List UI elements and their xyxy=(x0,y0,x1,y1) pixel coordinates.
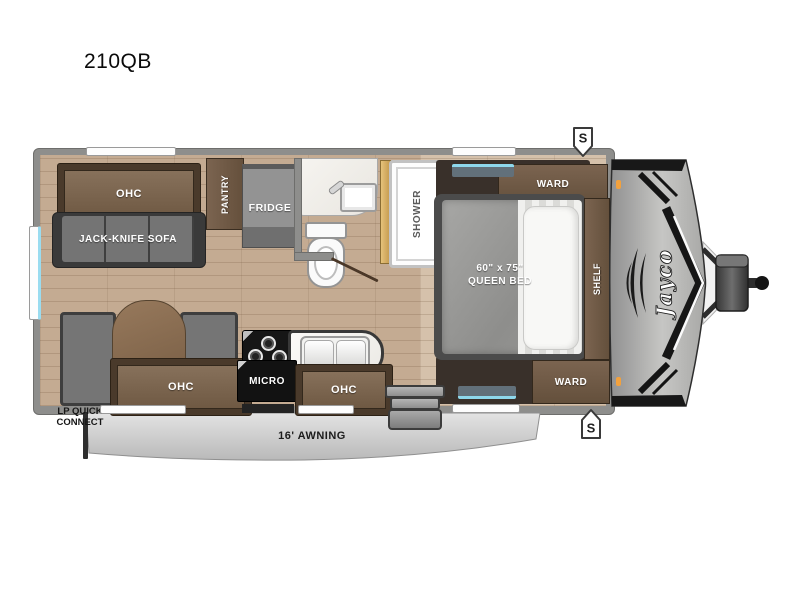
fridge-label: FRIDGE xyxy=(249,202,292,214)
ohc-rear-label: OHC xyxy=(116,188,142,200)
wardrobe-bottom: WARD xyxy=(532,360,610,404)
pantry-label: PANTRY xyxy=(220,175,230,214)
cabinet-face: OHC xyxy=(64,170,194,218)
awning-label: 16' AWNING xyxy=(262,430,362,442)
window-bottom-1 xyxy=(100,405,186,414)
hitch-ball xyxy=(755,276,769,290)
window-bottom-2 xyxy=(298,405,354,414)
entry-step xyxy=(388,409,442,430)
speaker-letter: S xyxy=(579,130,588,145)
speaker-badge-top: S xyxy=(572,126,594,158)
cap-trim-bottom xyxy=(612,395,686,406)
bathroom-wall-vertical xyxy=(294,158,302,260)
bed-label: 60" x 75" QUEEN BED xyxy=(444,262,556,288)
shower-label: SHOWER xyxy=(412,190,423,238)
window-top-front xyxy=(452,147,516,156)
cabinet-face: OHC xyxy=(117,365,245,409)
dinette-bench-left xyxy=(60,312,116,406)
entry-door-window xyxy=(458,386,516,399)
entry-door-threshold xyxy=(242,404,294,413)
window-top-rear xyxy=(86,147,176,156)
bathroom-sink xyxy=(340,183,377,212)
marker-light xyxy=(616,180,621,189)
sofa-label: JACK-KNIFE SOFA xyxy=(79,234,177,245)
front-cap: Jayco xyxy=(606,150,776,416)
bathroom-wall-stub xyxy=(294,252,334,261)
marker-light xyxy=(616,377,621,386)
dinette-table xyxy=(112,300,186,366)
jayco-logo: Jayco xyxy=(652,249,677,321)
speaker-letter: S xyxy=(587,420,596,435)
fridge: FRIDGE xyxy=(242,164,298,248)
floorplan-page: 210QB 16' AWNING LP QUICK CONNECT OHC JA… xyxy=(0,0,800,600)
lp-label-line2: CONNECT xyxy=(48,417,112,428)
burner-icon xyxy=(261,336,276,351)
microwave: MICRO xyxy=(237,360,297,402)
window-rear-wall xyxy=(29,226,41,320)
cabinet-face: OHC xyxy=(302,371,386,409)
speaker-badge-bottom: S xyxy=(580,408,602,440)
wardrobe-top-label: WARD xyxy=(537,179,570,190)
wardrobe-bottom-label: WARD xyxy=(555,377,588,388)
sofa-label-wrap: JACK-KNIFE SOFA xyxy=(52,212,204,266)
cap-trim-top xyxy=(612,160,686,171)
bed-dimensions-label: 60" x 75" xyxy=(444,262,556,275)
ohc-kitchen-label: OHC xyxy=(331,384,357,396)
bed-type-label: QUEEN BED xyxy=(444,275,556,288)
bedroom-window-top xyxy=(452,164,514,177)
window-bottom-3 xyxy=(452,404,520,413)
floorplan-model-title: 210QB xyxy=(84,50,152,74)
ohc-dinette-label: OHC xyxy=(168,381,194,393)
pantry-cabinet: PANTRY xyxy=(206,158,244,230)
shelf-label: SHELF xyxy=(592,263,602,295)
propane-cover-lid xyxy=(716,255,748,267)
microwave-label: MICRO xyxy=(249,376,285,387)
